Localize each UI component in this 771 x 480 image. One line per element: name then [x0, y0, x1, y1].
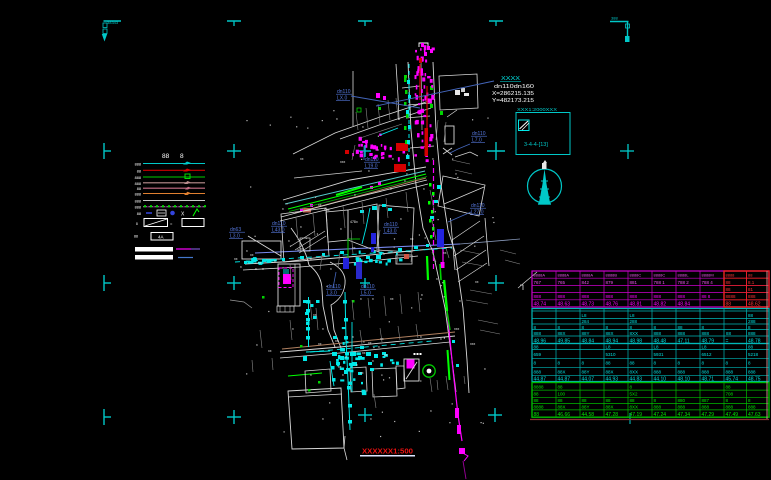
- svg-text:288: 288: [748, 319, 756, 324]
- svg-text:xx: xx: [443, 251, 447, 255]
- svg-text:x: x: [274, 259, 276, 263]
- svg-text:888: 888: [702, 370, 710, 375]
- svg-text:5X2: 5X2: [630, 392, 639, 397]
- svg-text:xx: xx: [313, 313, 317, 317]
- svg-text:47.49: 47.49: [726, 412, 739, 418]
- svg-text:8888A: 8888A: [582, 273, 594, 278]
- svg-text:47.28: 47.28: [606, 412, 619, 418]
- svg-text:888: 888: [678, 404, 686, 409]
- svg-text:x: x: [356, 363, 358, 367]
- svg-text:388: 388: [611, 16, 618, 21]
- svg-text:xx: xx: [384, 353, 388, 357]
- svg-text:888: 888: [654, 331, 662, 336]
- svg-text:8: 8: [180, 153, 184, 160]
- svg-text:88: 88: [726, 287, 732, 292]
- svg-text:48.75: 48.75: [748, 377, 761, 383]
- svg-text:88X: 88X: [558, 331, 566, 336]
- svg-text:767: 767: [534, 280, 542, 285]
- svg-text:L8: L8: [582, 313, 588, 318]
- svg-text:88: 88: [137, 187, 141, 191]
- svg-text:x: x: [352, 335, 354, 339]
- svg-text:888: 888: [534, 331, 542, 336]
- svg-text:x: x: [256, 343, 258, 347]
- svg-text:44.10: 44.10: [654, 377, 667, 383]
- svg-text:x: x: [420, 335, 422, 339]
- svg-text:88: 88: [582, 398, 588, 403]
- svg-text:46.66: 46.66: [558, 412, 571, 418]
- svg-text:888: 888: [630, 294, 638, 299]
- svg-text:8888A: 8888A: [558, 273, 570, 278]
- svg-text:CM: CM: [324, 208, 330, 212]
- svg-text:x: x: [390, 187, 392, 191]
- svg-text:x: x: [372, 297, 374, 301]
- svg-text:X=286215.135: X=286215.135: [492, 91, 534, 97]
- svg-text:44.87: 44.87: [534, 377, 547, 383]
- svg-text:88: 88: [726, 331, 732, 336]
- svg-text:L8: L8: [630, 313, 636, 318]
- svg-text:xx: xx: [362, 351, 366, 355]
- svg-text:44.07: 44.07: [582, 377, 595, 383]
- svg-text:xx: xx: [475, 280, 479, 284]
- svg-text:888: 888: [135, 163, 141, 167]
- svg-text:88 8: 88 8: [702, 294, 711, 299]
- svg-text:x: x: [300, 225, 302, 229]
- svg-text:88: 88: [630, 361, 636, 366]
- svg-text:47.63: 47.63: [748, 412, 761, 418]
- svg-text:88: 88: [137, 212, 141, 216]
- svg-text:x: x: [310, 373, 312, 377]
- svg-text:8.1: 8.1: [748, 280, 755, 285]
- svg-text:x: x: [432, 157, 434, 161]
- svg-text:x: x: [240, 265, 242, 269]
- svg-text:xx: xx: [380, 337, 384, 341]
- svg-text:dn110dn160: dn110dn160: [494, 84, 534, 90]
- svg-text:100: 100: [558, 392, 566, 397]
- svg-text:xx: xx: [258, 261, 262, 265]
- svg-text:888: 888: [702, 331, 710, 336]
- svg-text:5931: 5931: [654, 352, 665, 357]
- svg-text:47.19: 47.19: [630, 412, 643, 418]
- svg-text:x: x: [322, 417, 324, 421]
- svg-text:88: 88: [726, 385, 732, 390]
- svg-text:xx: xx: [390, 297, 394, 301]
- svg-text:88X: 88X: [606, 404, 614, 409]
- svg-text:xx: xx: [318, 342, 322, 346]
- svg-text:8888C: 8888C: [654, 273, 666, 278]
- svg-text:888: 888: [558, 294, 566, 299]
- svg-text:x: x: [440, 337, 442, 341]
- svg-text:x: x: [484, 367, 486, 371]
- svg-text:88Y: 88Y: [582, 370, 590, 375]
- svg-text:xx: xx: [300, 247, 304, 251]
- svg-text:88: 88: [134, 235, 138, 239]
- svg-text:88: 88: [558, 385, 564, 390]
- svg-text:4A: 4A: [158, 235, 164, 240]
- svg-text:8888: 8888: [726, 273, 736, 278]
- svg-text:xx: xx: [338, 365, 342, 369]
- svg-text:48.81: 48.81: [630, 302, 643, 308]
- svg-text:8888B: 8888B: [606, 273, 618, 278]
- svg-text:48.74: 48.74: [534, 302, 547, 308]
- svg-text:5218: 5218: [748, 352, 759, 357]
- svg-text:L8: L8: [702, 345, 708, 350]
- svg-text:xx: xx: [335, 339, 339, 343]
- svg-text:L8: L8: [654, 345, 660, 350]
- svg-text:888: 888: [135, 176, 141, 180]
- svg-text:888: 888: [678, 294, 686, 299]
- svg-text:x: x: [354, 193, 356, 197]
- svg-text:88: 88: [534, 398, 540, 403]
- svg-text:8XX: 8XX: [630, 331, 639, 336]
- svg-text:47.24: 47.24: [654, 412, 667, 418]
- svg-text:88Y: 88Y: [582, 331, 590, 336]
- svg-text:xx: xx: [410, 237, 414, 241]
- svg-text:x: x: [404, 179, 406, 183]
- svg-text:8XX: 8XX: [630, 370, 639, 375]
- svg-text:xx: xx: [318, 203, 322, 207]
- svg-text:x: x: [423, 187, 425, 191]
- svg-text:xxx: xxx: [454, 327, 460, 331]
- svg-text:88: 88: [534, 345, 540, 350]
- svg-text:44.83: 44.83: [630, 377, 643, 383]
- svg-text:888: 888: [534, 370, 542, 375]
- svg-text:45.74: 45.74: [726, 377, 739, 383]
- svg-text:708: 708: [726, 392, 734, 397]
- svg-text:88: 88: [534, 412, 540, 418]
- svg-text:788 1: 788 1: [654, 280, 666, 285]
- svg-text:x: x: [342, 373, 344, 377]
- svg-text:XXXXXX1:500: XXXXXX1:500: [362, 449, 413, 456]
- svg-text:x: x: [398, 117, 400, 121]
- svg-text:x: x: [421, 293, 423, 297]
- svg-text:888: 888: [726, 404, 734, 409]
- svg-text:888: 888: [135, 182, 141, 186]
- svg-text:xx: xx: [352, 246, 356, 250]
- svg-text:x: x: [246, 249, 248, 253]
- svg-text:47.29: 47.29: [702, 412, 715, 418]
- svg-text:48.63: 48.63: [558, 302, 571, 308]
- svg-text:44.58: 44.58: [582, 412, 595, 418]
- svg-text:284: 284: [582, 319, 590, 324]
- svg-text:38343: 38343: [107, 20, 119, 25]
- svg-text:88Y: 88Y: [582, 404, 590, 409]
- svg-text:888: 888: [606, 294, 614, 299]
- svg-text:842: 842: [582, 280, 590, 285]
- svg-text:x: x: [336, 117, 338, 121]
- svg-text:8888C: 8888C: [630, 273, 642, 278]
- svg-text:x: x: [322, 327, 324, 331]
- svg-text:xxx: xxx: [340, 160, 346, 164]
- svg-text:888: 888: [135, 206, 141, 210]
- svg-text:Y=482173.215: Y=482173.215: [492, 98, 534, 104]
- svg-text:5310: 5310: [606, 352, 617, 357]
- svg-text:888: 888: [702, 404, 710, 409]
- svg-text:879: 879: [606, 280, 614, 285]
- svg-text:788 2: 788 2: [678, 280, 690, 285]
- svg-text:48.82: 48.82: [654, 302, 667, 308]
- svg-text:8888A: 8888A: [534, 273, 546, 278]
- svg-text:XXXX: XXXX: [501, 76, 521, 82]
- svg-text:88: 88: [558, 398, 564, 403]
- svg-text:xxx: xxx: [470, 342, 476, 346]
- svg-text:48.62: 48.62: [748, 302, 761, 308]
- svg-text:x: x: [330, 267, 332, 271]
- svg-text:81: 81: [748, 287, 754, 292]
- svg-text:3-4-4-[13]: 3-4-4-[13]: [524, 142, 548, 148]
- svg-text:6512: 6512: [702, 352, 713, 357]
- svg-text:888: 888: [534, 294, 542, 299]
- svg-text:887: 887: [702, 398, 710, 403]
- svg-text:888: 888: [748, 370, 756, 375]
- svg-text:x: x: [420, 297, 422, 301]
- svg-text:x: x: [378, 345, 380, 349]
- svg-text:888: 888: [654, 404, 662, 409]
- svg-text:x: x: [362, 125, 364, 129]
- svg-text:888: 888: [135, 200, 141, 204]
- svg-text:888: 888: [654, 294, 662, 299]
- svg-text:888: 888: [678, 370, 686, 375]
- svg-text:88: 88: [534, 392, 540, 397]
- svg-text:888: 888: [654, 370, 662, 375]
- svg-text:x: x: [436, 277, 438, 281]
- svg-text:x: x: [368, 169, 370, 173]
- svg-text:88: 88: [630, 398, 636, 403]
- svg-text:XXX1:2000XXX: XXX1:2000XXX: [517, 107, 557, 112]
- svg-text:88: 88: [606, 361, 612, 366]
- svg-text:L8: L8: [606, 345, 612, 350]
- svg-text:8XX: 8XX: [630, 404, 639, 409]
- svg-text:888: 888: [678, 331, 686, 336]
- svg-text:xx: xx: [268, 349, 272, 353]
- svg-text:x: x: [356, 220, 358, 224]
- svg-text:8888M: 8888M: [702, 273, 714, 278]
- svg-text:880: 880: [678, 398, 686, 403]
- svg-text:88X: 88X: [606, 370, 614, 375]
- svg-text:48.10: 48.10: [678, 377, 691, 383]
- svg-text:44.87: 44.87: [558, 377, 571, 383]
- svg-text:xx: xx: [250, 253, 254, 257]
- svg-text:659: 659: [534, 352, 542, 357]
- svg-text:88: 88: [726, 302, 732, 308]
- svg-text:xx: xx: [300, 157, 304, 161]
- svg-text:xx: xx: [368, 341, 372, 345]
- svg-text:888: 888: [135, 193, 141, 197]
- svg-text:88: 88: [748, 273, 753, 278]
- svg-text:888: 888: [582, 294, 590, 299]
- svg-text:8: 8: [136, 222, 138, 226]
- svg-text:88: 88: [137, 169, 141, 173]
- svg-text:x: x: [360, 297, 362, 301]
- svg-text:x: x: [383, 252, 385, 256]
- svg-text:8888: 8888: [726, 294, 737, 299]
- svg-text:88X: 88X: [606, 331, 614, 336]
- svg-text:x: x: [282, 207, 284, 211]
- svg-text:478: 478: [350, 220, 356, 224]
- svg-text:88: 88: [678, 325, 684, 330]
- svg-text:881: 881: [630, 280, 638, 285]
- svg-text:765: 765: [558, 280, 566, 285]
- svg-text:x: x: [345, 355, 347, 359]
- svg-text:8888L: 8888L: [678, 273, 690, 278]
- svg-text:48.71: 48.71: [702, 377, 715, 383]
- svg-text:888: 888: [748, 404, 756, 409]
- svg-text:88: 88: [606, 398, 612, 403]
- svg-text:88X: 88X: [558, 404, 566, 409]
- svg-text:8888: 8888: [534, 404, 545, 409]
- svg-text:288: 288: [630, 319, 638, 324]
- svg-text:x: x: [370, 417, 372, 421]
- svg-text:x: x: [400, 217, 402, 221]
- svg-text:x: x: [262, 267, 264, 271]
- svg-text:48.84: 48.84: [678, 302, 691, 308]
- svg-text:x: x: [288, 239, 290, 243]
- svg-text:x: x: [372, 359, 374, 363]
- svg-text:788 4: 788 4: [702, 280, 714, 285]
- svg-text:88: 88: [726, 280, 732, 285]
- svg-text:x: x: [392, 157, 394, 161]
- svg-text:x: x: [430, 409, 432, 413]
- svg-text:888: 888: [726, 370, 734, 375]
- svg-text:48.76: 48.76: [606, 302, 619, 308]
- svg-text:888: 888: [748, 294, 756, 299]
- svg-text:x: x: [292, 327, 294, 331]
- svg-text:8888: 8888: [534, 385, 545, 390]
- svg-text:44.93: 44.93: [606, 377, 619, 383]
- svg-text:88: 88: [748, 313, 754, 318]
- svg-text:888: 888: [748, 331, 756, 336]
- svg-text:48.73: 48.73: [582, 302, 595, 308]
- svg-text:47.34: 47.34: [678, 412, 691, 418]
- svg-text:x: x: [255, 267, 257, 271]
- svg-text:88: 88: [748, 345, 754, 350]
- svg-text:x: x: [310, 257, 312, 261]
- svg-text:88X: 88X: [558, 370, 566, 375]
- svg-text:xx: xx: [234, 257, 238, 261]
- svg-text:xx: xx: [360, 371, 364, 375]
- svg-text:x: x: [459, 299, 461, 303]
- svg-text:x: x: [340, 227, 342, 231]
- svg-text:88: 88: [162, 153, 170, 160]
